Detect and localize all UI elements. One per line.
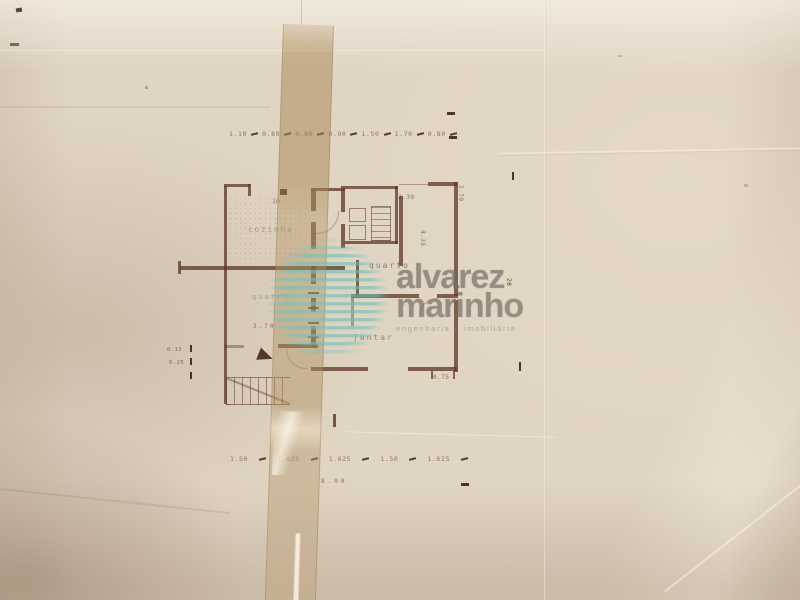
paper-speck (145, 86, 148, 89)
dimension-value: 1.625 (329, 455, 352, 463)
wall-segment (224, 184, 250, 187)
dimension-value: 1.50 (380, 455, 398, 463)
dimension-tick (461, 483, 469, 486)
dimension-label: 0.25 (169, 360, 184, 366)
paper-sheet (0, 0, 800, 600)
wall-segment (248, 184, 251, 196)
dimension-value: 0.90 (328, 130, 346, 138)
wall-segment (345, 186, 398, 189)
dimension-row-bottom: 1.50 1.625 1.625 1.50 1.625 (230, 455, 468, 463)
room-label-quarto-right: quarto (369, 261, 410, 270)
room-label-jantar: jantar (353, 333, 394, 342)
dimension-tick (409, 457, 416, 461)
dimension-label: 0.75 (433, 374, 449, 381)
tape-shine-highlight (272, 411, 308, 476)
window-sill (399, 184, 428, 185)
dimension-tick (453, 371, 455, 379)
dimension-label: 4.35 (419, 230, 426, 246)
dimension-value: 1.625 (427, 455, 450, 463)
dimension-label: 20 (505, 278, 512, 286)
crease-bottom-left (1, 488, 230, 514)
dimension-tick (259, 457, 266, 461)
dimension-value: 1.70 (395, 130, 413, 138)
crease-mid-right (345, 431, 555, 437)
dimension-tick (350, 132, 357, 136)
dimension-tick (383, 132, 390, 136)
dimension-label: 2.30 (398, 194, 414, 201)
dimension-tick (519, 362, 521, 371)
crease-above-tape (301, 0, 302, 25)
dimension-label: 3.70 (253, 323, 275, 330)
wall-segment (341, 186, 345, 212)
dimension-tick (461, 457, 468, 461)
paper-speck (618, 55, 622, 57)
dimension-tick (251, 132, 258, 136)
wall-segment (341, 224, 345, 248)
wall-segment (351, 298, 354, 326)
wall-segment (224, 345, 244, 348)
bath-fixture (349, 225, 366, 240)
bath-fixture (349, 208, 366, 222)
dimension-value: 1.50 (230, 455, 248, 463)
dimension-tick (362, 457, 369, 461)
dimension-label: 2.70 (457, 185, 464, 201)
wall-segment (428, 182, 457, 186)
wall-segment (224, 186, 227, 404)
dimension-label: 0.15 (167, 347, 182, 353)
dimension-tick (450, 132, 457, 136)
shelf-fixture (371, 206, 391, 241)
photographed-floor-plan: 1.10 0.80 0.80 0.90 1.50 1.70 0.80 1.50 … (0, 0, 800, 600)
wall-segment (351, 294, 419, 298)
crease-bottom-right-diagonal (664, 449, 800, 592)
crease-horizontal-left (0, 106, 270, 108)
dimension-tick (190, 358, 192, 365)
dimension-row-top: 1.10 0.80 0.80 0.90 1.50 1.70 0.80 (229, 130, 457, 138)
wall-segment (345, 241, 398, 244)
dimension-tick (512, 172, 514, 180)
wall-segment (454, 300, 458, 372)
dimension-total: 8.00 (321, 478, 347, 485)
tape-fold-highlight (294, 533, 300, 600)
dimension-value: 0.80 (262, 130, 280, 138)
dimension-tick (447, 112, 455, 115)
dimension-tick (333, 414, 336, 427)
paper-speck (744, 184, 748, 187)
dimension-value: 0.80 (428, 130, 446, 138)
crease-vertical (544, 0, 546, 600)
wall-segment (399, 196, 403, 266)
wall-segment (437, 294, 458, 298)
wall-segment (356, 260, 359, 296)
dimension-value: 1.50 (362, 130, 380, 138)
crease-top (0, 50, 545, 51)
dimension-tick (417, 132, 424, 136)
dimension-value: 1.10 (229, 130, 247, 138)
dimension-tick (190, 372, 192, 379)
dimension-tick (190, 345, 192, 352)
paper-speck (16, 8, 23, 13)
paper-speck (10, 43, 19, 46)
